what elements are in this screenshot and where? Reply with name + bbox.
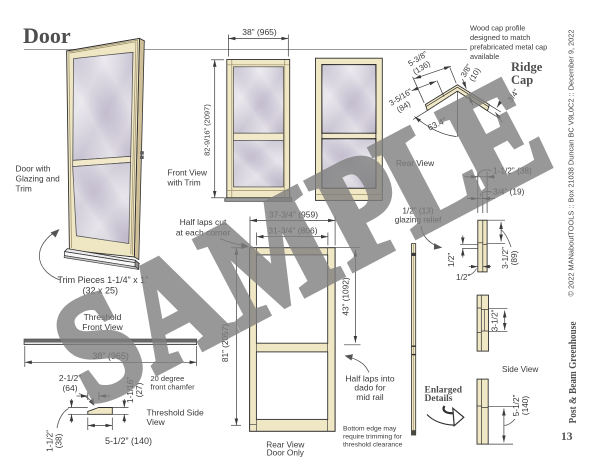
svg-text:5-1/2” (140): 5-1/2” (140) — [105, 436, 152, 446]
svg-text:mid rail: mid rail — [356, 392, 384, 402]
svg-text:Glazing and: Glazing and — [16, 174, 61, 184]
svg-text:Bottom edge may: Bottom edge may — [343, 425, 397, 432]
svg-text:(38): (38) — [54, 433, 64, 448]
svg-text:Trim: Trim — [16, 184, 32, 194]
svg-text:designed to match: designed to match — [470, 33, 530, 42]
svg-text:Door with: Door with — [16, 164, 51, 174]
svg-text:Door Only: Door Only — [267, 448, 305, 458]
svg-text:(140): (140) — [520, 396, 530, 416]
svg-text:View: View — [147, 417, 166, 427]
svg-text:with Trim: with Trim — [167, 178, 201, 188]
svg-text:require trimming for: require trimming for — [343, 433, 403, 440]
svg-text:1/2”: 1/2” — [456, 272, 471, 282]
svg-text:© 2022 MANaboutTOOLS :: Box 21: © 2022 MANaboutTOOLS :: Box 21038 Duncan… — [567, 29, 576, 296]
svg-text:Front View: Front View — [168, 168, 209, 178]
svg-text:Post & Beam Greenhouse: Post & Beam Greenhouse — [568, 321, 579, 423]
svg-text:Details: Details — [425, 394, 453, 404]
svg-text:Door: Door — [23, 23, 71, 48]
svg-text:(89): (89) — [509, 250, 519, 265]
svg-text:Ridge: Ridge — [511, 60, 543, 74]
svg-text:prefabricated metal cap: prefabricated metal cap — [470, 43, 547, 52]
svg-text:38” (965): 38” (965) — [242, 27, 277, 37]
svg-text:13: 13 — [561, 431, 573, 443]
svg-text:threshold clearance: threshold clearance — [343, 442, 403, 449]
svg-text:Wood cap profile: Wood cap profile — [470, 24, 525, 33]
svg-text:3-1/2”: 3-1/2” — [490, 309, 500, 331]
svg-text:82-9/16” (2097): 82-9/16” (2097) — [203, 104, 212, 156]
svg-text:(64): (64) — [62, 383, 77, 393]
svg-text:Side View: Side View — [502, 365, 538, 374]
